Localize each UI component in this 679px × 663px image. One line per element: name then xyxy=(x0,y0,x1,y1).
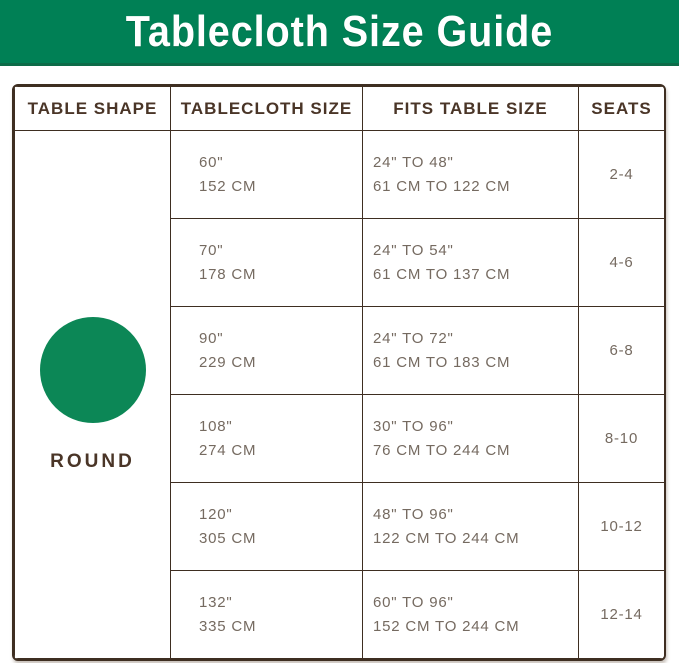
tablecloth-size-cell: 90" 229 CM xyxy=(171,307,363,395)
size-guide-table-grid: TABLE SHAPE TABLECLOTH SIZE FITS TABLE S… xyxy=(14,86,665,659)
fits-cm: 76 CM TO 244 CM xyxy=(373,439,577,463)
seats-cell: 4-6 xyxy=(579,219,665,307)
size-guide-table: TABLE SHAPE TABLECLOTH SIZE FITS TABLE S… xyxy=(12,84,666,661)
title-banner: Tablecloth Size Guide xyxy=(0,0,679,66)
fits-inches: 24" TO 54" xyxy=(373,239,577,263)
size-inches: 90" xyxy=(199,327,361,351)
fits-cm: 122 CM TO 244 CM xyxy=(373,527,577,551)
col-header-table-shape: TABLE SHAPE xyxy=(15,87,171,131)
round-shape-icon xyxy=(40,317,146,423)
tablecloth-size-cell: 132" 335 CM xyxy=(171,571,363,659)
fits-cm: 61 CM TO 183 CM xyxy=(373,351,577,375)
size-inches: 108" xyxy=(199,415,361,439)
tablecloth-size-cell: 108" 274 CM xyxy=(171,395,363,483)
fits-table-size-cell: 60" TO 96" 152 CM TO 244 CM xyxy=(363,571,579,659)
size-cm: 178 CM xyxy=(199,263,361,287)
size-inches: 132" xyxy=(199,591,361,615)
size-cm: 229 CM xyxy=(199,351,361,375)
fits-table-size-cell: 24" TO 54" 61 CM TO 137 CM xyxy=(363,219,579,307)
size-cm: 335 CM xyxy=(199,615,361,639)
fits-inches: 24" TO 48" xyxy=(373,151,577,175)
size-inches: 60" xyxy=(199,151,361,175)
size-cm: 274 CM xyxy=(199,439,361,463)
size-cm: 152 CM xyxy=(199,175,361,199)
fits-inches: 30" TO 96" xyxy=(373,415,577,439)
shape-label: ROUND xyxy=(16,451,169,473)
fits-inches: 24" TO 72" xyxy=(373,327,577,351)
fits-cm: 61 CM TO 122 CM xyxy=(373,175,577,199)
seats-cell: 6-8 xyxy=(579,307,665,395)
fits-cm: 61 CM TO 137 CM xyxy=(373,263,577,287)
seats-cell: 12-14 xyxy=(579,571,665,659)
size-inches: 70" xyxy=(199,239,361,263)
col-header-tablecloth-size: TABLECLOTH SIZE xyxy=(171,87,363,131)
table-shape-cell: ROUND xyxy=(15,131,171,659)
fits-table-size-cell: 24" TO 72" 61 CM TO 183 CM xyxy=(363,307,579,395)
table-row: ROUND 60" 152 CM 24" TO 48" 61 CM TO 122… xyxy=(15,131,665,219)
header-row: TABLE SHAPE TABLECLOTH SIZE FITS TABLE S… xyxy=(15,87,665,131)
tablecloth-size-cell: 70" 178 CM xyxy=(171,219,363,307)
fits-inches: 48" TO 96" xyxy=(373,503,577,527)
seats-cell: 2-4 xyxy=(579,131,665,219)
fits-inches: 60" TO 96" xyxy=(373,591,577,615)
seats-cell: 10-12 xyxy=(579,483,665,571)
col-header-fits-table-size: FITS TABLE SIZE xyxy=(363,87,579,131)
seats-cell: 8-10 xyxy=(579,395,665,483)
size-cm: 305 CM xyxy=(199,527,361,551)
fits-table-size-cell: 30" TO 96" 76 CM TO 244 CM xyxy=(363,395,579,483)
fits-table-size-cell: 48" TO 96" 122 CM TO 244 CM xyxy=(363,483,579,571)
fits-cm: 152 CM TO 244 CM xyxy=(373,615,577,639)
size-inches: 120" xyxy=(199,503,361,527)
fits-table-size-cell: 24" TO 48" 61 CM TO 122 CM xyxy=(363,131,579,219)
col-header-seats: SEATS xyxy=(579,87,665,131)
page-title: Tablecloth Size Guide xyxy=(126,7,553,57)
tablecloth-size-cell: 120" 305 CM xyxy=(171,483,363,571)
tablecloth-size-cell: 60" 152 CM xyxy=(171,131,363,219)
